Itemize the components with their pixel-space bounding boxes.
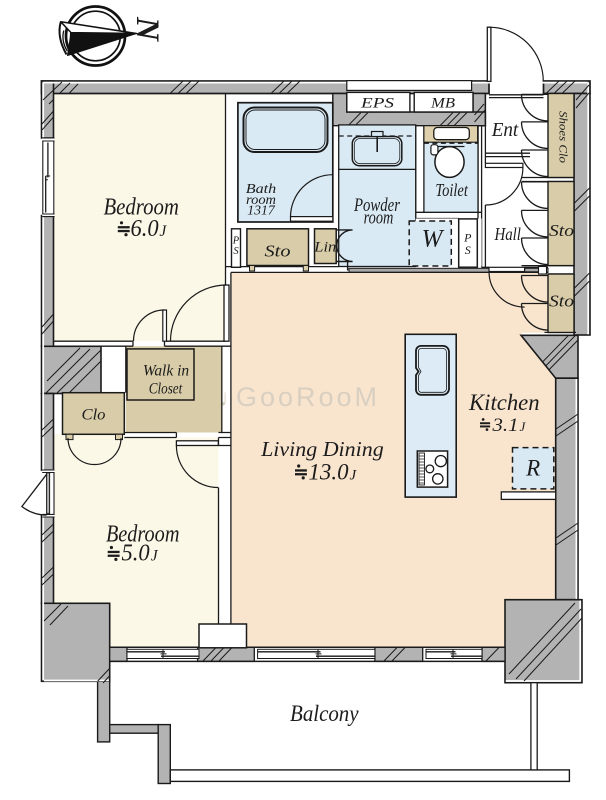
svg-text:GooRooM: GooRooM (236, 382, 380, 412)
svg-text:room: room (364, 208, 394, 229)
svg-text:Hall: Hall (494, 224, 521, 244)
svg-text:Closet: Closet (149, 381, 183, 398)
svg-text:Living Dining: Living Dining (260, 437, 384, 461)
svg-text:S: S (233, 246, 239, 257)
svg-text:Balcony: Balcony (290, 701, 359, 726)
svg-text:Sto: Sto (549, 292, 574, 311)
svg-text:1317: 1317 (247, 203, 275, 218)
svg-text:W: W (422, 225, 445, 252)
svg-text:R: R (525, 456, 540, 481)
svg-text:13.0: 13.0 (309, 459, 349, 484)
svg-text:MB: MB (430, 96, 455, 112)
svg-text:J: J (159, 223, 167, 240)
svg-text:N: N (129, 16, 165, 42)
svg-text:Sto: Sto (265, 242, 291, 261)
svg-text:5.0: 5.0 (122, 541, 150, 567)
svg-text:Shoes Clo: Shoes Clo (557, 111, 571, 163)
svg-text:EPS: EPS (360, 96, 395, 112)
svg-text:6.0: 6.0 (131, 216, 159, 242)
svg-text:P: P (232, 236, 240, 247)
svg-text:Lin: Lin (313, 240, 336, 256)
svg-text:Clo: Clo (82, 407, 106, 424)
svg-text:S: S (465, 243, 471, 257)
svg-text:Toilet: Toilet (435, 180, 468, 200)
svg-text:Kitchen: Kitchen (468, 390, 540, 415)
svg-text:Ent: Ent (491, 120, 519, 141)
svg-text:Walk in: Walk in (143, 363, 189, 380)
svg-text:3.1: 3.1 (491, 415, 518, 436)
svg-text:Sto: Sto (549, 221, 574, 240)
svg-text:J: J (151, 548, 159, 565)
